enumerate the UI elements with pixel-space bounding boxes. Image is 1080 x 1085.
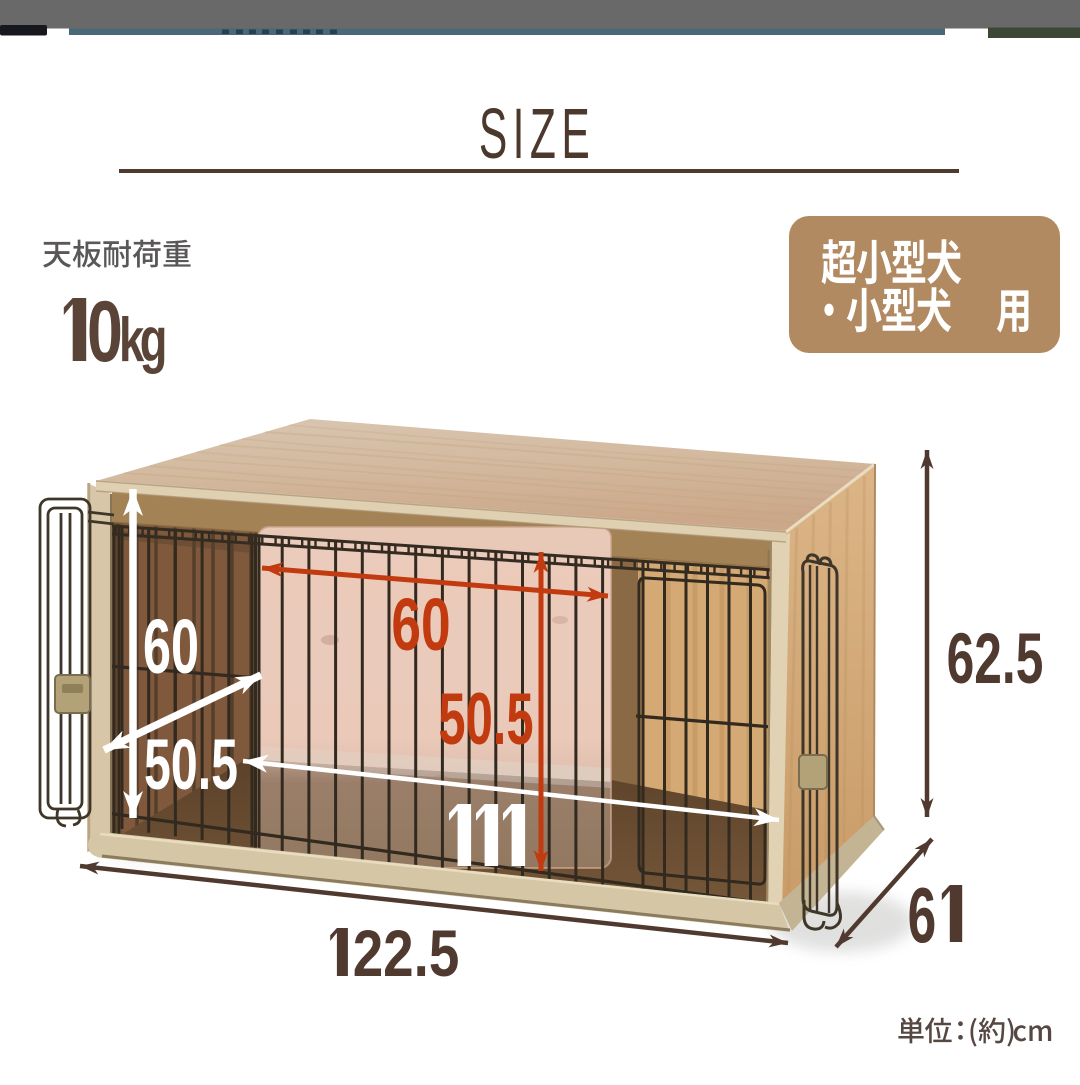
svg-text:6: 6 [908, 872, 937, 959]
svg-text:50.5: 50.5 [438, 679, 533, 760]
svg-text:22.5: 22.5 [353, 916, 460, 990]
svg-text:0: 0 [87, 284, 123, 380]
svg-text:60: 60 [143, 603, 199, 689]
svg-text:kg: kg [119, 305, 165, 375]
svg-text:60: 60 [391, 583, 450, 666]
svg-text:62.5: 62.5 [947, 619, 1044, 698]
svg-text:SIZE: SIZE [479, 95, 595, 174]
svg-text:50.5: 50.5 [144, 725, 238, 805]
